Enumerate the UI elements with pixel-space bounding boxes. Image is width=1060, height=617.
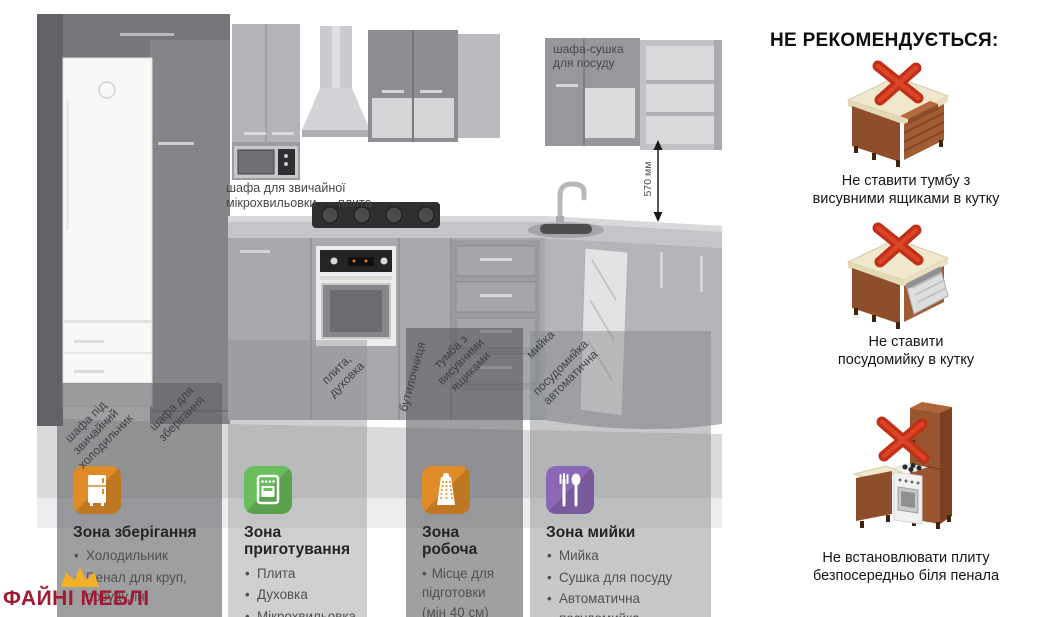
stove-near-pantry-figure (852, 396, 956, 546)
zone-item: Плита (244, 564, 357, 583)
crown-icon (58, 565, 102, 589)
corner-drawer-cabinet-figure (842, 60, 954, 168)
zone-storage-badge (73, 466, 121, 514)
dimension-arrow (654, 140, 663, 222)
zone-item: Мікрохвильовка (244, 607, 357, 617)
cooker-hood (302, 26, 370, 137)
zone-item: Холодильник (73, 546, 212, 565)
zone-cooking-badge (244, 466, 292, 514)
storage-tall-cabinet (150, 40, 230, 424)
cutlery-icon (546, 466, 594, 514)
zone-item: Духовка (244, 585, 357, 604)
left-side-panel (37, 14, 63, 426)
zone-washing-badge (546, 466, 594, 514)
zone-item: Сушка для посуду (546, 568, 701, 587)
zone-item: Мийка (546, 546, 701, 565)
zone-items: Плита Духовка Мікрохвильовка (244, 564, 357, 617)
not-recommended-caption: Не ставити посудомийку в кутку (766, 333, 1046, 369)
fridge (63, 58, 152, 406)
dryer-cabinet-label: шафа-сушка для посуду (553, 42, 624, 70)
zone-title: Зона приготування (244, 524, 357, 559)
zone-title: Зона робоча (422, 524, 513, 559)
grater-icon (422, 466, 470, 514)
zone-item: Місце для підготовки (мін 40 см) (422, 564, 513, 617)
zone-item: Автоматична посудомийка (546, 589, 701, 617)
fridge-icon (73, 466, 121, 514)
microwave-cabinet-label: шафа для звичайної мікрохвильовки (226, 181, 346, 211)
zone-items: Місце для підготовки (мін 40 см) (422, 564, 513, 617)
microwave (232, 142, 300, 180)
zone-title: Зона зберігання (73, 524, 212, 541)
kitchen-zones-infographic: шафа для звичайної мікрохвильовки плита … (0, 0, 1060, 617)
sink (528, 184, 604, 238)
hob-label: плита (338, 196, 372, 211)
zone-items: Мийка Сушка для посуду Автоматична посуд… (546, 546, 701, 617)
not-recommended-caption: Не ставити тумбу з висувними ящиками в к… (766, 172, 1046, 208)
zone-work-badge (422, 466, 470, 514)
dimension-label: 570 мм (642, 156, 654, 202)
zone-title: Зона мийки (546, 524, 701, 541)
not-recommended-title: НЕ РЕКОМЕНДУЄТЬСЯ: (770, 30, 999, 52)
dish-dryer-cabinet (640, 40, 722, 150)
not-recommended-caption: Не встановлювати плиту безпосередньо біл… (766, 549, 1046, 585)
corner-dishwasher-figure (842, 222, 954, 330)
stove-icon (244, 466, 292, 514)
brand-name: ФАЙНІ МЕБЛІ (3, 587, 150, 611)
oven (316, 246, 396, 346)
not-recommended-panel: НЕ РЕКОМЕНДУЄТЬСЯ: Не с (762, 0, 1060, 617)
